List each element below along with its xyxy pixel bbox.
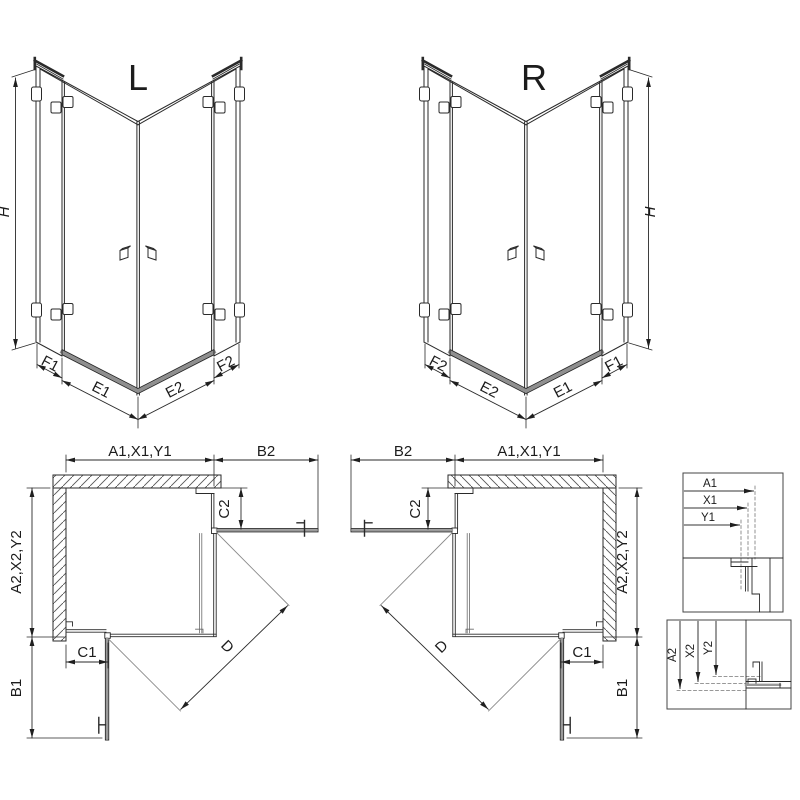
- plan-left-dim-label-c1: C1: [77, 644, 96, 661]
- iso-left-variant-label: L: [128, 57, 148, 98]
- iso-right-variant-label: R: [521, 57, 547, 98]
- detail-horizontal-arrows: [684, 491, 753, 525]
- plan-left-dim-label-b2: B2: [257, 443, 275, 460]
- plan-left-dim-label-c2: C2: [216, 499, 233, 518]
- plan-right-dim-label-width: A1,X1,Y1: [497, 443, 560, 460]
- technical-drawing-page: L H F1 E1 E2 F2 R H F2 E2 E1 F1 A1,X1,Y1…: [0, 0, 800, 800]
- plan-right-dim-label-depth: A2,X2,Y2: [614, 530, 631, 593]
- iso-left-dim-label-f2: F2: [214, 352, 237, 375]
- detail-label-x1: X1: [703, 495, 717, 507]
- iso-view-right: R H F2 E2 E1 F1: [420, 57, 660, 428]
- iso-right-dim-label-h: H: [642, 206, 659, 217]
- iso-left-dim-label-e1: E1: [89, 378, 113, 402]
- detail-label-y1: Y1: [701, 512, 715, 524]
- detail-label-x2: X2: [685, 644, 697, 658]
- plan-right-dim-label-c2: C2: [407, 499, 424, 518]
- detail-label-a2: A2: [667, 648, 679, 662]
- plan-view-left: A1,X1,Y1 B2 A2,X2,Y2 B1 C1 C2 D: [8, 443, 318, 740]
- plan-left-dim-label-b1: B1: [8, 679, 25, 697]
- iso-left-dim-label-f1: F1: [38, 352, 61, 375]
- detail-label-a1: A1: [703, 478, 717, 490]
- iso-right-dim-label-f2: F2: [426, 352, 449, 375]
- iso-right-dim-label-f1: F1: [602, 352, 625, 375]
- shower-enclosure-diagram: L H F1 E1 E2 F2 R H F2 E2 E1 F1 A1,X1,Y1…: [0, 0, 800, 800]
- iso-view-left: L H F1 E1 E2 F2: [0, 57, 245, 428]
- detail-horizontal-frame: [683, 473, 783, 612]
- plan-left-geometry: [27, 455, 318, 740]
- plan-right-geometry: [351, 455, 642, 740]
- plan-right-dim-label-b1: B1: [614, 679, 631, 697]
- plan-right-dim-label-b2: B2: [394, 443, 412, 460]
- plan-left-dim-label-d: D: [217, 637, 237, 657]
- plan-view-right: B2 A1,X1,Y1 A2,X2,Y2 B1 C1 C2 D: [351, 443, 642, 740]
- iso-right-geometry: [420, 58, 653, 428]
- iso-left-dim-label-h: H: [0, 206, 13, 217]
- detail-box-horizontal-offsets: A1 X1 Y1: [683, 473, 783, 612]
- iso-left-dim-label-e2: E2: [163, 378, 187, 402]
- detail-label-y2: Y2: [703, 641, 715, 655]
- iso-right-dim-label-e1: E1: [551, 378, 575, 402]
- plan-left-dim-label-width: A1,X1,Y1: [108, 443, 171, 460]
- iso-right-dim-label-e2: E2: [477, 378, 501, 402]
- detail-horizontal-profile-section: [683, 558, 783, 612]
- plan-left-dim-label-depth: A2,X2,Y2: [8, 530, 25, 593]
- detail-vertical-profile-section: [746, 620, 791, 709]
- detail-vertical-frame: [667, 620, 791, 709]
- iso-left-geometry: [12, 58, 245, 428]
- detail-box-vertical-offsets: A2 X2 Y2: [667, 620, 791, 709]
- plan-right-dim-label-d: D: [432, 637, 452, 657]
- plan-right-dim-label-c1: C1: [572, 644, 591, 661]
